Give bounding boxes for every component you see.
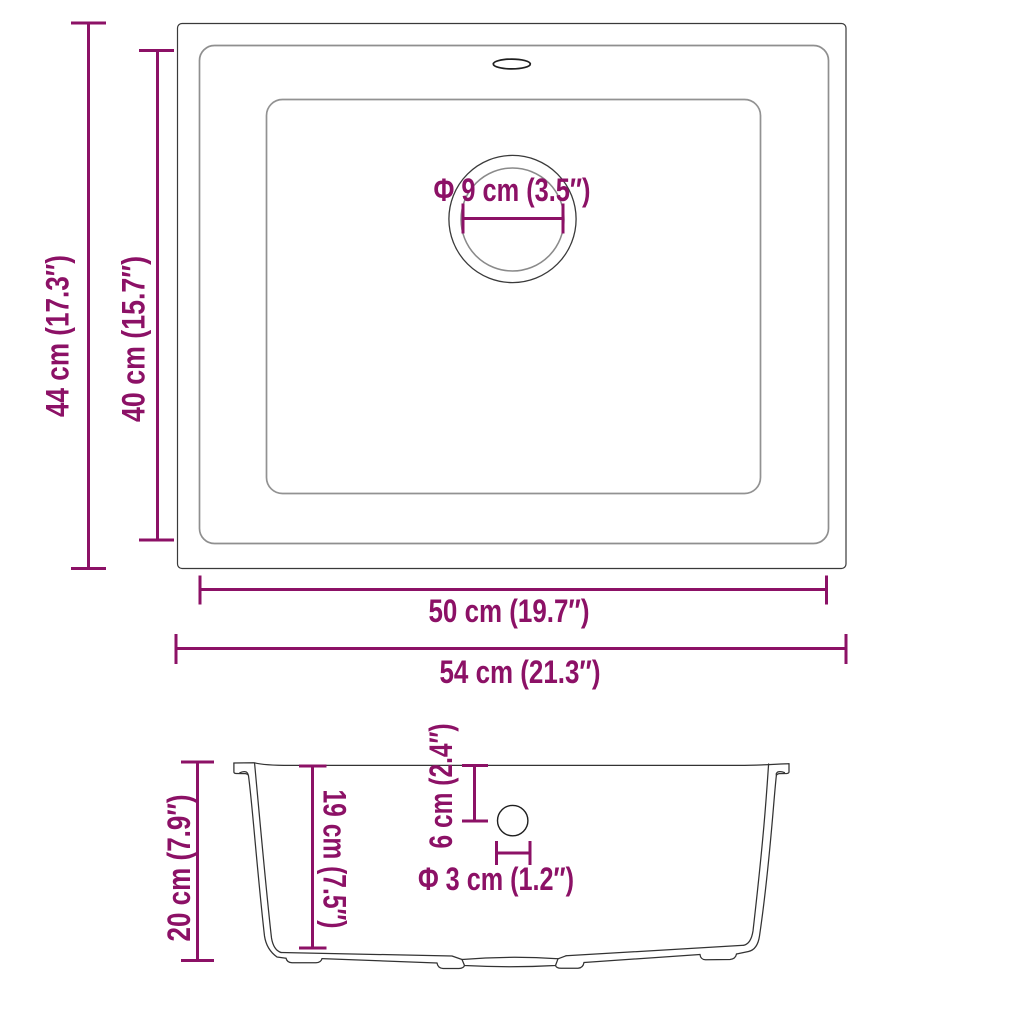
svg-text:Φ 3 cm (1.2″): Φ 3 cm (1.2″) <box>418 861 574 897</box>
svg-text:54 cm (21.3″): 54 cm (21.3″) <box>440 654 601 690</box>
svg-text:19 cm (7.5″): 19 cm (7.5″) <box>317 790 353 929</box>
svg-text:44 cm (17.3″): 44 cm (17.3″) <box>40 255 76 417</box>
svg-text:6 cm (2.4″): 6 cm (2.4″) <box>423 724 459 849</box>
svg-text:20 cm (7.9″): 20 cm (7.9″) <box>161 795 197 942</box>
svg-text:50 cm (19.7″): 50 cm (19.7″) <box>429 593 590 629</box>
svg-text:40 cm (15.7″): 40 cm (15.7″) <box>116 256 152 422</box>
svg-text:Φ 9 cm (3.5″): Φ 9 cm (3.5″) <box>434 172 591 208</box>
